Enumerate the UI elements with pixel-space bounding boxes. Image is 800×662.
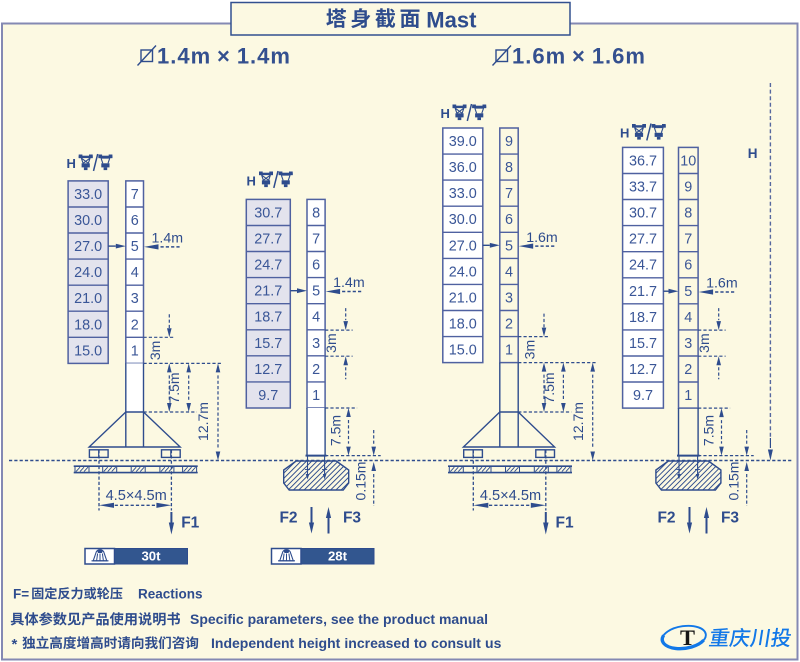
- svg-text:15.7: 15.7: [254, 336, 282, 352]
- svg-text:36.7: 36.7: [629, 153, 657, 169]
- svg-text:0.15m: 0.15m: [353, 462, 369, 501]
- svg-text:30t: 30t: [141, 549, 161, 564]
- svg-text:24.0: 24.0: [449, 264, 477, 280]
- svg-text:9.7: 9.7: [633, 388, 653, 404]
- svg-text:Mast: Mast: [426, 8, 477, 33]
- svg-text:2: 2: [684, 362, 692, 378]
- svg-text:30.0: 30.0: [74, 213, 102, 229]
- svg-text:Specific parameters, see the p: Specific parameters, see the product man…: [190, 611, 488, 627]
- svg-text:24.7: 24.7: [629, 258, 657, 274]
- svg-text:5: 5: [312, 284, 320, 300]
- svg-text:30.0: 30.0: [449, 212, 477, 228]
- svg-text:F1: F1: [556, 515, 574, 532]
- svg-text:F2: F2: [657, 509, 675, 526]
- svg-text:3m: 3m: [323, 333, 339, 352]
- svg-text:21.0: 21.0: [74, 291, 102, 307]
- svg-text:18.0: 18.0: [74, 317, 102, 333]
- svg-text:6: 6: [131, 213, 139, 229]
- svg-text:30.7: 30.7: [629, 206, 657, 222]
- svg-text:8: 8: [505, 160, 513, 176]
- svg-text:28t: 28t: [328, 549, 348, 564]
- svg-text:0.15m: 0.15m: [726, 462, 742, 501]
- svg-text:7: 7: [131, 187, 139, 203]
- svg-text:1.6m: 1.6m: [526, 230, 558, 246]
- svg-text:4: 4: [312, 310, 320, 326]
- svg-text:33.0: 33.0: [449, 186, 477, 202]
- svg-text:12.7: 12.7: [629, 362, 657, 378]
- svg-text:18.7: 18.7: [629, 310, 657, 326]
- svg-text:7.5m: 7.5m: [328, 415, 344, 446]
- svg-text:15.7: 15.7: [629, 336, 657, 352]
- svg-text:1.6m × 1.6m: 1.6m × 1.6m: [512, 44, 646, 69]
- svg-text:2: 2: [312, 362, 320, 378]
- svg-text:3m: 3m: [696, 333, 712, 352]
- svg-text:10: 10: [680, 153, 696, 169]
- svg-text:3: 3: [131, 291, 139, 307]
- svg-text:6: 6: [505, 212, 513, 228]
- svg-text:1.4m: 1.4m: [333, 275, 365, 291]
- svg-text:1.4m: 1.4m: [152, 231, 184, 247]
- svg-text:5: 5: [131, 239, 139, 255]
- svg-text:H: H: [67, 156, 76, 171]
- svg-text:7: 7: [312, 232, 320, 248]
- svg-text:2: 2: [131, 317, 139, 333]
- svg-text:21.7: 21.7: [254, 284, 282, 300]
- svg-text:3m: 3m: [522, 340, 538, 359]
- svg-text:4.5×4.5m: 4.5×4.5m: [106, 488, 167, 504]
- svg-text:8: 8: [684, 206, 692, 222]
- svg-text:6: 6: [312, 258, 320, 274]
- svg-text:30.7: 30.7: [254, 205, 282, 221]
- svg-text:9: 9: [684, 180, 692, 196]
- svg-text:27.7: 27.7: [629, 232, 657, 248]
- svg-text:39.0: 39.0: [449, 134, 477, 150]
- svg-text:H: H: [748, 146, 758, 161]
- svg-text:2: 2: [505, 317, 513, 333]
- svg-text:5: 5: [505, 238, 513, 254]
- svg-text:12.7m: 12.7m: [570, 402, 586, 441]
- svg-text:H: H: [441, 106, 450, 121]
- svg-text:7: 7: [684, 232, 692, 248]
- svg-text:1.4m × 1.4m: 1.4m × 1.4m: [157, 44, 291, 69]
- svg-text:1: 1: [505, 343, 513, 359]
- svg-text:27.0: 27.0: [74, 239, 102, 255]
- svg-text:3: 3: [505, 291, 513, 307]
- svg-text:15.0: 15.0: [74, 343, 102, 359]
- svg-text:1.6m: 1.6m: [706, 276, 738, 292]
- svg-text:27.0: 27.0: [449, 238, 477, 254]
- svg-text:Reactions: Reactions: [138, 587, 203, 602]
- svg-text:1: 1: [131, 343, 139, 359]
- svg-text:3: 3: [684, 336, 692, 352]
- svg-text:12.7: 12.7: [254, 362, 282, 378]
- svg-text:6: 6: [684, 258, 692, 274]
- svg-text:4: 4: [131, 265, 139, 281]
- svg-text:3: 3: [312, 336, 320, 352]
- svg-text:9: 9: [505, 134, 513, 150]
- svg-text:F=: F=: [13, 587, 29, 602]
- svg-text:1: 1: [312, 388, 320, 404]
- svg-text:F3: F3: [721, 509, 739, 526]
- svg-text:*: *: [12, 636, 18, 653]
- svg-text:24.0: 24.0: [74, 265, 102, 281]
- svg-text:9.7: 9.7: [258, 388, 278, 404]
- svg-text:3m: 3m: [147, 341, 163, 360]
- svg-text:18.7: 18.7: [254, 310, 282, 326]
- svg-text:8: 8: [312, 205, 320, 221]
- svg-text:36.0: 36.0: [449, 160, 477, 176]
- svg-text:7.5m: 7.5m: [541, 372, 557, 403]
- svg-text:15.0: 15.0: [449, 343, 477, 359]
- svg-text:F2: F2: [279, 509, 297, 526]
- svg-text:7.5m: 7.5m: [701, 415, 717, 446]
- svg-text:24.7: 24.7: [254, 258, 282, 274]
- svg-text:21.0: 21.0: [449, 291, 477, 307]
- svg-text:4.5×4.5m: 4.5×4.5m: [480, 488, 541, 504]
- svg-text:12.7m: 12.7m: [195, 402, 211, 441]
- svg-text:33.0: 33.0: [74, 187, 102, 203]
- svg-text:5: 5: [684, 284, 692, 300]
- svg-text:7.5m: 7.5m: [166, 372, 182, 403]
- svg-text:21.7: 21.7: [629, 284, 657, 300]
- svg-text:H: H: [247, 174, 256, 189]
- svg-text:4: 4: [505, 264, 513, 280]
- svg-text:7: 7: [505, 186, 513, 202]
- svg-text:T: T: [680, 625, 695, 650]
- svg-text:F3: F3: [343, 509, 361, 526]
- svg-text:33.7: 33.7: [629, 180, 657, 196]
- svg-text:18.0: 18.0: [449, 317, 477, 333]
- svg-text:Independent height increased t: Independent height increased to consult …: [211, 635, 502, 651]
- svg-text:27.7: 27.7: [254, 232, 282, 248]
- svg-text:1: 1: [684, 388, 692, 404]
- svg-text:H: H: [620, 126, 629, 141]
- svg-text:4: 4: [684, 310, 692, 326]
- svg-text:F1: F1: [181, 515, 199, 532]
